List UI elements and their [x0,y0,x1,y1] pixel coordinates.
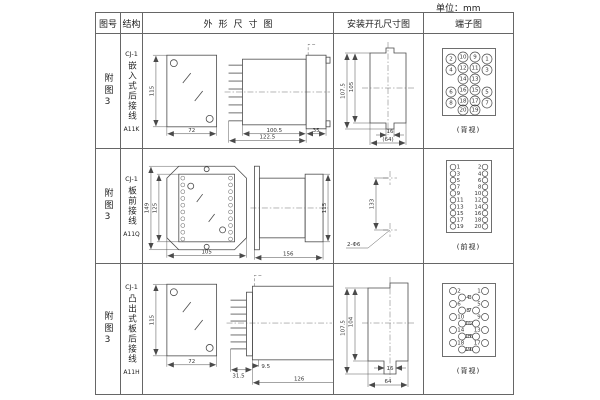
svg-text:9: 9 [473,54,477,60]
svg-text:13: 13 [471,76,478,82]
svg-text:10: 10 [459,54,466,60]
svg-text:12: 12 [459,65,466,71]
dim-overall-width-row1: (64) [382,137,393,143]
structure-desc-row2: 板前接线 [126,186,138,226]
cell-install-row2: 133 2-Φ6 [334,149,424,264]
dim-case-height-row2: 115 [322,202,328,212]
terminal-caption-row3: (背视) [457,366,480,376]
cell-structure-row1: CJ-1 嵌入式后接线 A11K [121,34,143,149]
dim-cutout-outer-row1: 107.5 [341,82,347,98]
svg-text:19: 19 [471,107,478,113]
structure-desc-row1: 嵌入式后接线 [126,61,138,121]
svg-text:19: 19 [464,347,471,353]
dim-window-height-row2: 125 [152,202,158,212]
svg-text:7: 7 [485,100,489,106]
cell-install-row1: 107.5 105 16 (64) [334,34,424,149]
svg-text:4: 4 [449,67,453,73]
header-outline: 外形尺寸图 [143,13,334,34]
dim-body-depth-row1: 100.5 [266,127,282,133]
header-structure: 结构 [121,13,143,34]
header-terminal: 端子图 [424,13,513,34]
svg-text:15: 15 [471,87,478,93]
svg-text:12: 12 [474,198,481,204]
dim-depth-row2: 156 [283,251,294,257]
cell-figure-row2: 附图3 [96,149,121,264]
terminal-caption-row2: (前视) [457,242,480,252]
structure-desc-row3: 凸出式板后接线 [126,294,138,364]
dim-overall-width-row3: 64 [385,379,392,385]
model-row1: CJ-1 [125,50,138,58]
dim-cutout-inner-row1: 105 [349,81,355,92]
outline-drawing-row2: 149 125 105 156 [143,150,333,263]
svg-text:1: 1 [485,56,489,62]
dim-cutout-inner-row3: 104 [349,316,355,327]
terminal-caption-row1: (背视) [457,125,480,135]
svg-text:8: 8 [449,100,453,106]
dim-front-width-row3: 72 [188,359,195,365]
svg-text:2: 2 [457,288,461,294]
dimension-table: 图号 结构 外形尺寸图 安装开孔尺寸图 端子图 附图3 CJ-1 嵌入式后接线 … [95,12,514,395]
svg-text:8: 8 [477,185,481,191]
side-view-row1: 100.5 35 122.5 [225,44,330,142]
outline-drawing-row1: 115 72 100.5 [143,35,333,148]
svg-text:4: 4 [477,171,481,177]
model-row2: CJ-1 [125,175,138,183]
dim-front-height-row3: 115 [149,315,155,325]
svg-text:16: 16 [459,87,466,93]
svg-text:2: 2 [477,165,481,171]
relay-dimension-sheet: 单位：mm 图号 结构 外形尺寸图 安装开孔尺寸图 端子图 附图3 CJ-1 嵌… [0,0,600,400]
dim-slot-width-row1: 16 [387,129,394,135]
svg-text:17: 17 [456,218,463,224]
svg-text:6: 6 [477,178,481,184]
svg-text:15: 15 [456,211,463,217]
svg-text:17: 17 [471,98,478,104]
cell-install-row3: 107.5 104 16 64 [334,264,424,394]
svg-text:15: 15 [464,334,471,340]
svg-text:14: 14 [459,76,466,82]
outline-drawing-row3: 115 72 9 [143,266,333,392]
cell-structure-row3: CJ-1 凸出式板后接线 A11H [121,264,143,394]
cell-terminal-row1: 2109141211314136161558181772019 (背视) [424,34,513,149]
front-view-row3: 115 72 [149,284,216,367]
dim-depth-row3: 126 [294,377,305,383]
type-code-row2: A11Q [123,231,139,238]
cell-figure-row3: 附图3 [96,264,121,394]
svg-text:1: 1 [456,165,460,171]
dim-plate-width-row2: 105 [201,249,211,255]
svg-text:7: 7 [456,185,460,191]
svg-text:9: 9 [477,314,481,320]
svg-text:13: 13 [473,327,480,333]
svg-text:13: 13 [456,204,463,210]
svg-text:11: 11 [456,198,463,204]
svg-text:3: 3 [485,67,489,73]
cell-outline-row1: 115 72 100.5 [143,34,334,149]
svg-text:7: 7 [468,308,472,314]
cell-terminal-row2: 1234567891011121314151617181920 (前视) [424,149,513,264]
svg-text:3: 3 [468,295,472,301]
install-drawing-row1: 107.5 105 16 (64) [334,35,423,148]
header-figure: 图号 [96,13,121,34]
svg-text:3: 3 [456,171,460,177]
front-view-row1: 115 72 [149,55,216,136]
header-install: 安装开孔尺寸图 [334,13,424,34]
svg-text:2: 2 [449,56,453,62]
svg-text:5: 5 [485,89,489,95]
dim-slot-width-row3: 16 [387,366,394,372]
svg-text:20: 20 [474,224,481,230]
svg-text:1: 1 [477,288,481,294]
svg-text:19: 19 [456,224,463,230]
svg-text:18: 18 [474,218,481,224]
dim-cutout-outer-row3: 107.5 [341,320,347,336]
svg-text:11: 11 [464,321,471,327]
cell-outline-row2: 149 125 105 156 [143,149,334,264]
svg-text:17: 17 [473,340,480,346]
install-drawing-row3: 107.5 104 16 64 [334,266,423,392]
model-row3: CJ-1 [125,283,138,291]
svg-text:18: 18 [459,98,466,104]
dim-total-depth-row1: 122.5 [260,134,276,140]
hole-spec-row2: 2-Φ6 [347,242,361,248]
dim-front-height-row1: 115 [149,85,155,95]
svg-text:10: 10 [474,191,481,197]
svg-text:6: 6 [457,301,461,307]
svg-text:20: 20 [459,107,466,113]
type-code-row3: A11H [123,369,139,376]
dim-gap-row3: 9.5 [261,364,270,370]
svg-text:5: 5 [456,178,460,184]
svg-text:14: 14 [474,204,481,210]
type-code-row1: A11K [124,126,140,133]
dim-hole-span-row2: 133 [370,198,376,209]
svg-text:9: 9 [456,191,460,197]
terminal-diagram-row2: 1234567891011121314151617181920 [446,160,492,237]
dim-front-width-row1: 72 [188,127,195,133]
cell-structure-row2: CJ-1 板前接线 A11Q [121,149,143,264]
cell-figure-row1: 附图3 [96,34,121,149]
side-view-row2: 156 115 [250,166,330,260]
dim-flange-depth-row1: 35 [313,127,320,133]
dim-comb-depth-row3: 31.5 [232,374,244,380]
terminal-diagram-row3: 2143658710912111413161518172019 [442,283,496,361]
side-view-row3: 9.5 31.5 126 [227,275,333,384]
svg-text:16: 16 [474,211,481,217]
terminal-diagram-row1: 2109141211314136161558181772019 [442,48,496,120]
cell-outline-row3: 115 72 9 [143,264,334,394]
svg-text:6: 6 [449,89,453,95]
svg-text:11: 11 [471,65,478,71]
dim-plate-height-row2: 149 [144,202,150,213]
cell-terminal-row3: 2143658710912111413161518172019 (背视) [424,264,513,394]
svg-text:5: 5 [477,301,481,307]
install-drawing-row2: 133 2-Φ6 [334,150,423,263]
front-view-row2: 149 125 105 [144,166,246,258]
